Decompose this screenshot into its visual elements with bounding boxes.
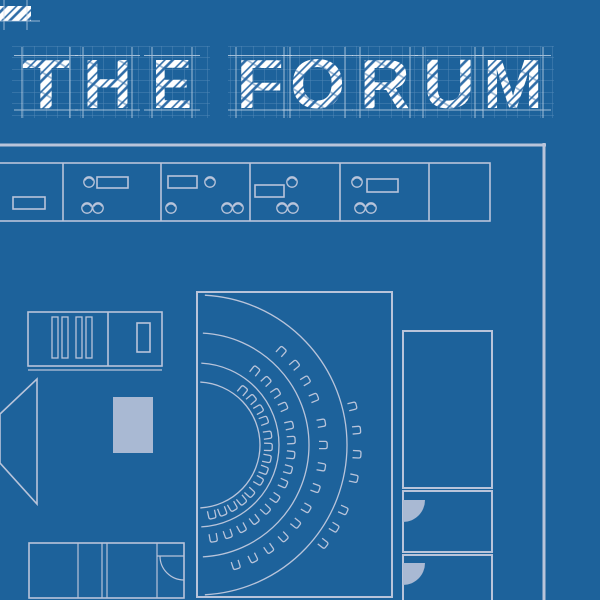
title-letter-overlay: H bbox=[83, 45, 132, 123]
title-letter-overlay: M bbox=[483, 45, 543, 123]
title-letter-overlay: T bbox=[22, 45, 70, 123]
title-letter-overlay: E bbox=[152, 45, 192, 123]
blueprint-canvas: TTHHEEFFOORRUUMM bbox=[0, 0, 600, 600]
table-filled bbox=[113, 397, 153, 453]
title-letter-overlay: R bbox=[360, 45, 410, 123]
title-letter-overlay: O bbox=[290, 45, 345, 123]
title-letter-overlay: F bbox=[236, 45, 284, 123]
cropped-letter-fragment bbox=[0, 6, 31, 21]
title-letter-overlay: U bbox=[423, 45, 475, 123]
blueprint-poster: TTHHEEFFOORRUUMM bbox=[0, 0, 600, 600]
